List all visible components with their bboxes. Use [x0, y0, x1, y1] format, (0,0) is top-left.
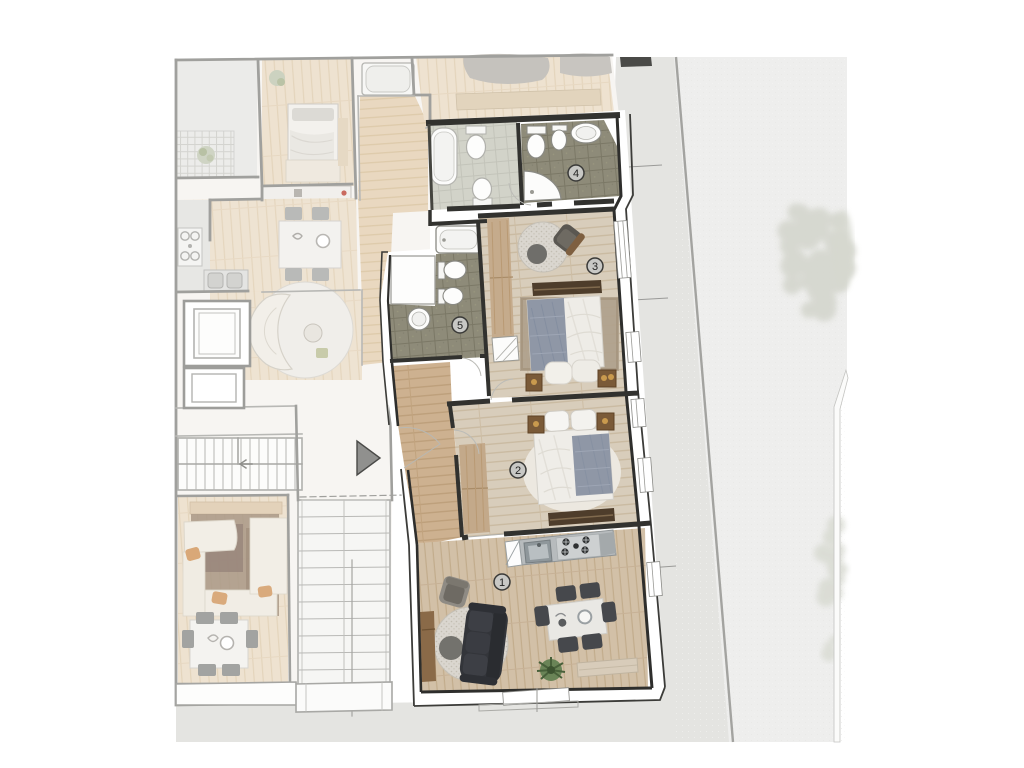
svg-text:4: 4	[573, 168, 579, 180]
svg-text:1: 1	[499, 577, 505, 589]
svg-text:2: 2	[515, 465, 521, 477]
svg-text:3: 3	[592, 261, 598, 273]
svg-text:5: 5	[457, 320, 463, 332]
